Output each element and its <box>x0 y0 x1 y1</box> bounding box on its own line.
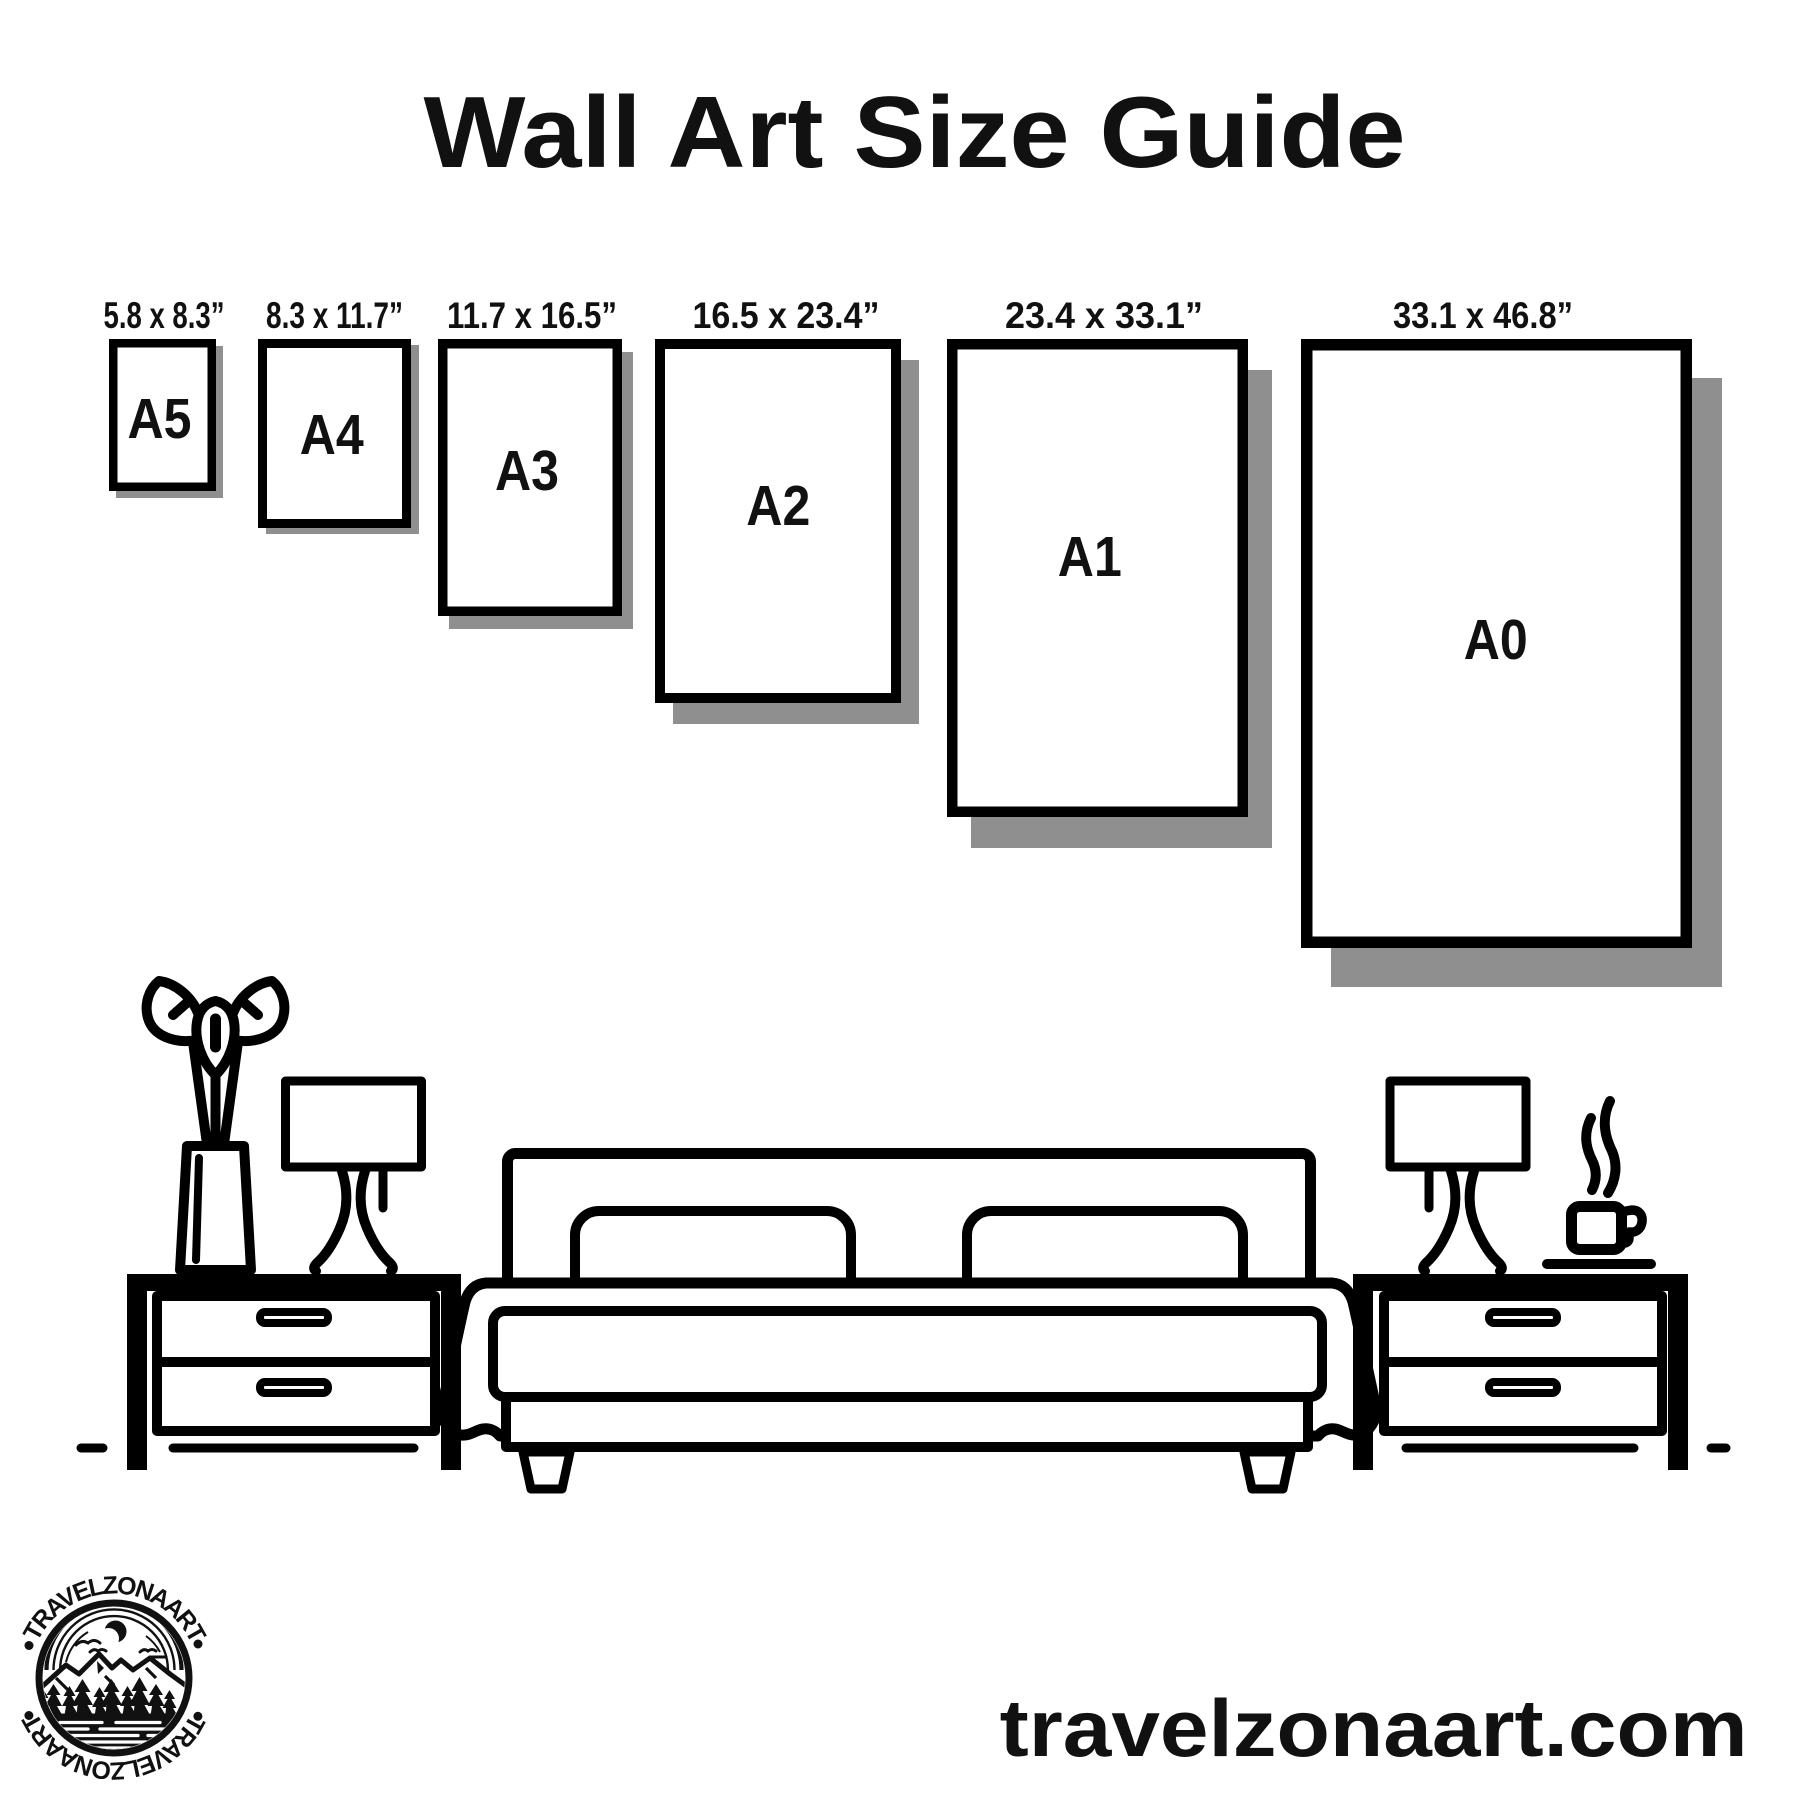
svg-text:A1: A1 <box>1058 525 1122 589</box>
svg-text:travelzonaart.com: travelzonaart.com <box>1000 1684 1748 1774</box>
svg-text:11.7 x 16.5”: 11.7 x 16.5” <box>447 295 617 336</box>
svg-text:A0: A0 <box>1464 608 1528 672</box>
svg-text:33.1 x 46.8”: 33.1 x 46.8” <box>1393 295 1573 336</box>
svg-text:A5: A5 <box>128 387 192 451</box>
svg-text:16.5 x 23.4”: 16.5 x 23.4” <box>693 295 880 336</box>
svg-text:8.3 x 11.7”: 8.3 x 11.7” <box>266 295 403 336</box>
svg-text:23.4 x 33.1”: 23.4 x 33.1” <box>1005 295 1203 336</box>
svg-text:A4: A4 <box>300 403 364 467</box>
svg-text:A3: A3 <box>495 439 559 503</box>
svg-text:5.8 x 8.3”: 5.8 x 8.3” <box>104 295 225 336</box>
svg-text:A2: A2 <box>746 474 810 538</box>
svg-text:Wall Art Size Guide: Wall Art Size Guide <box>424 77 1406 189</box>
